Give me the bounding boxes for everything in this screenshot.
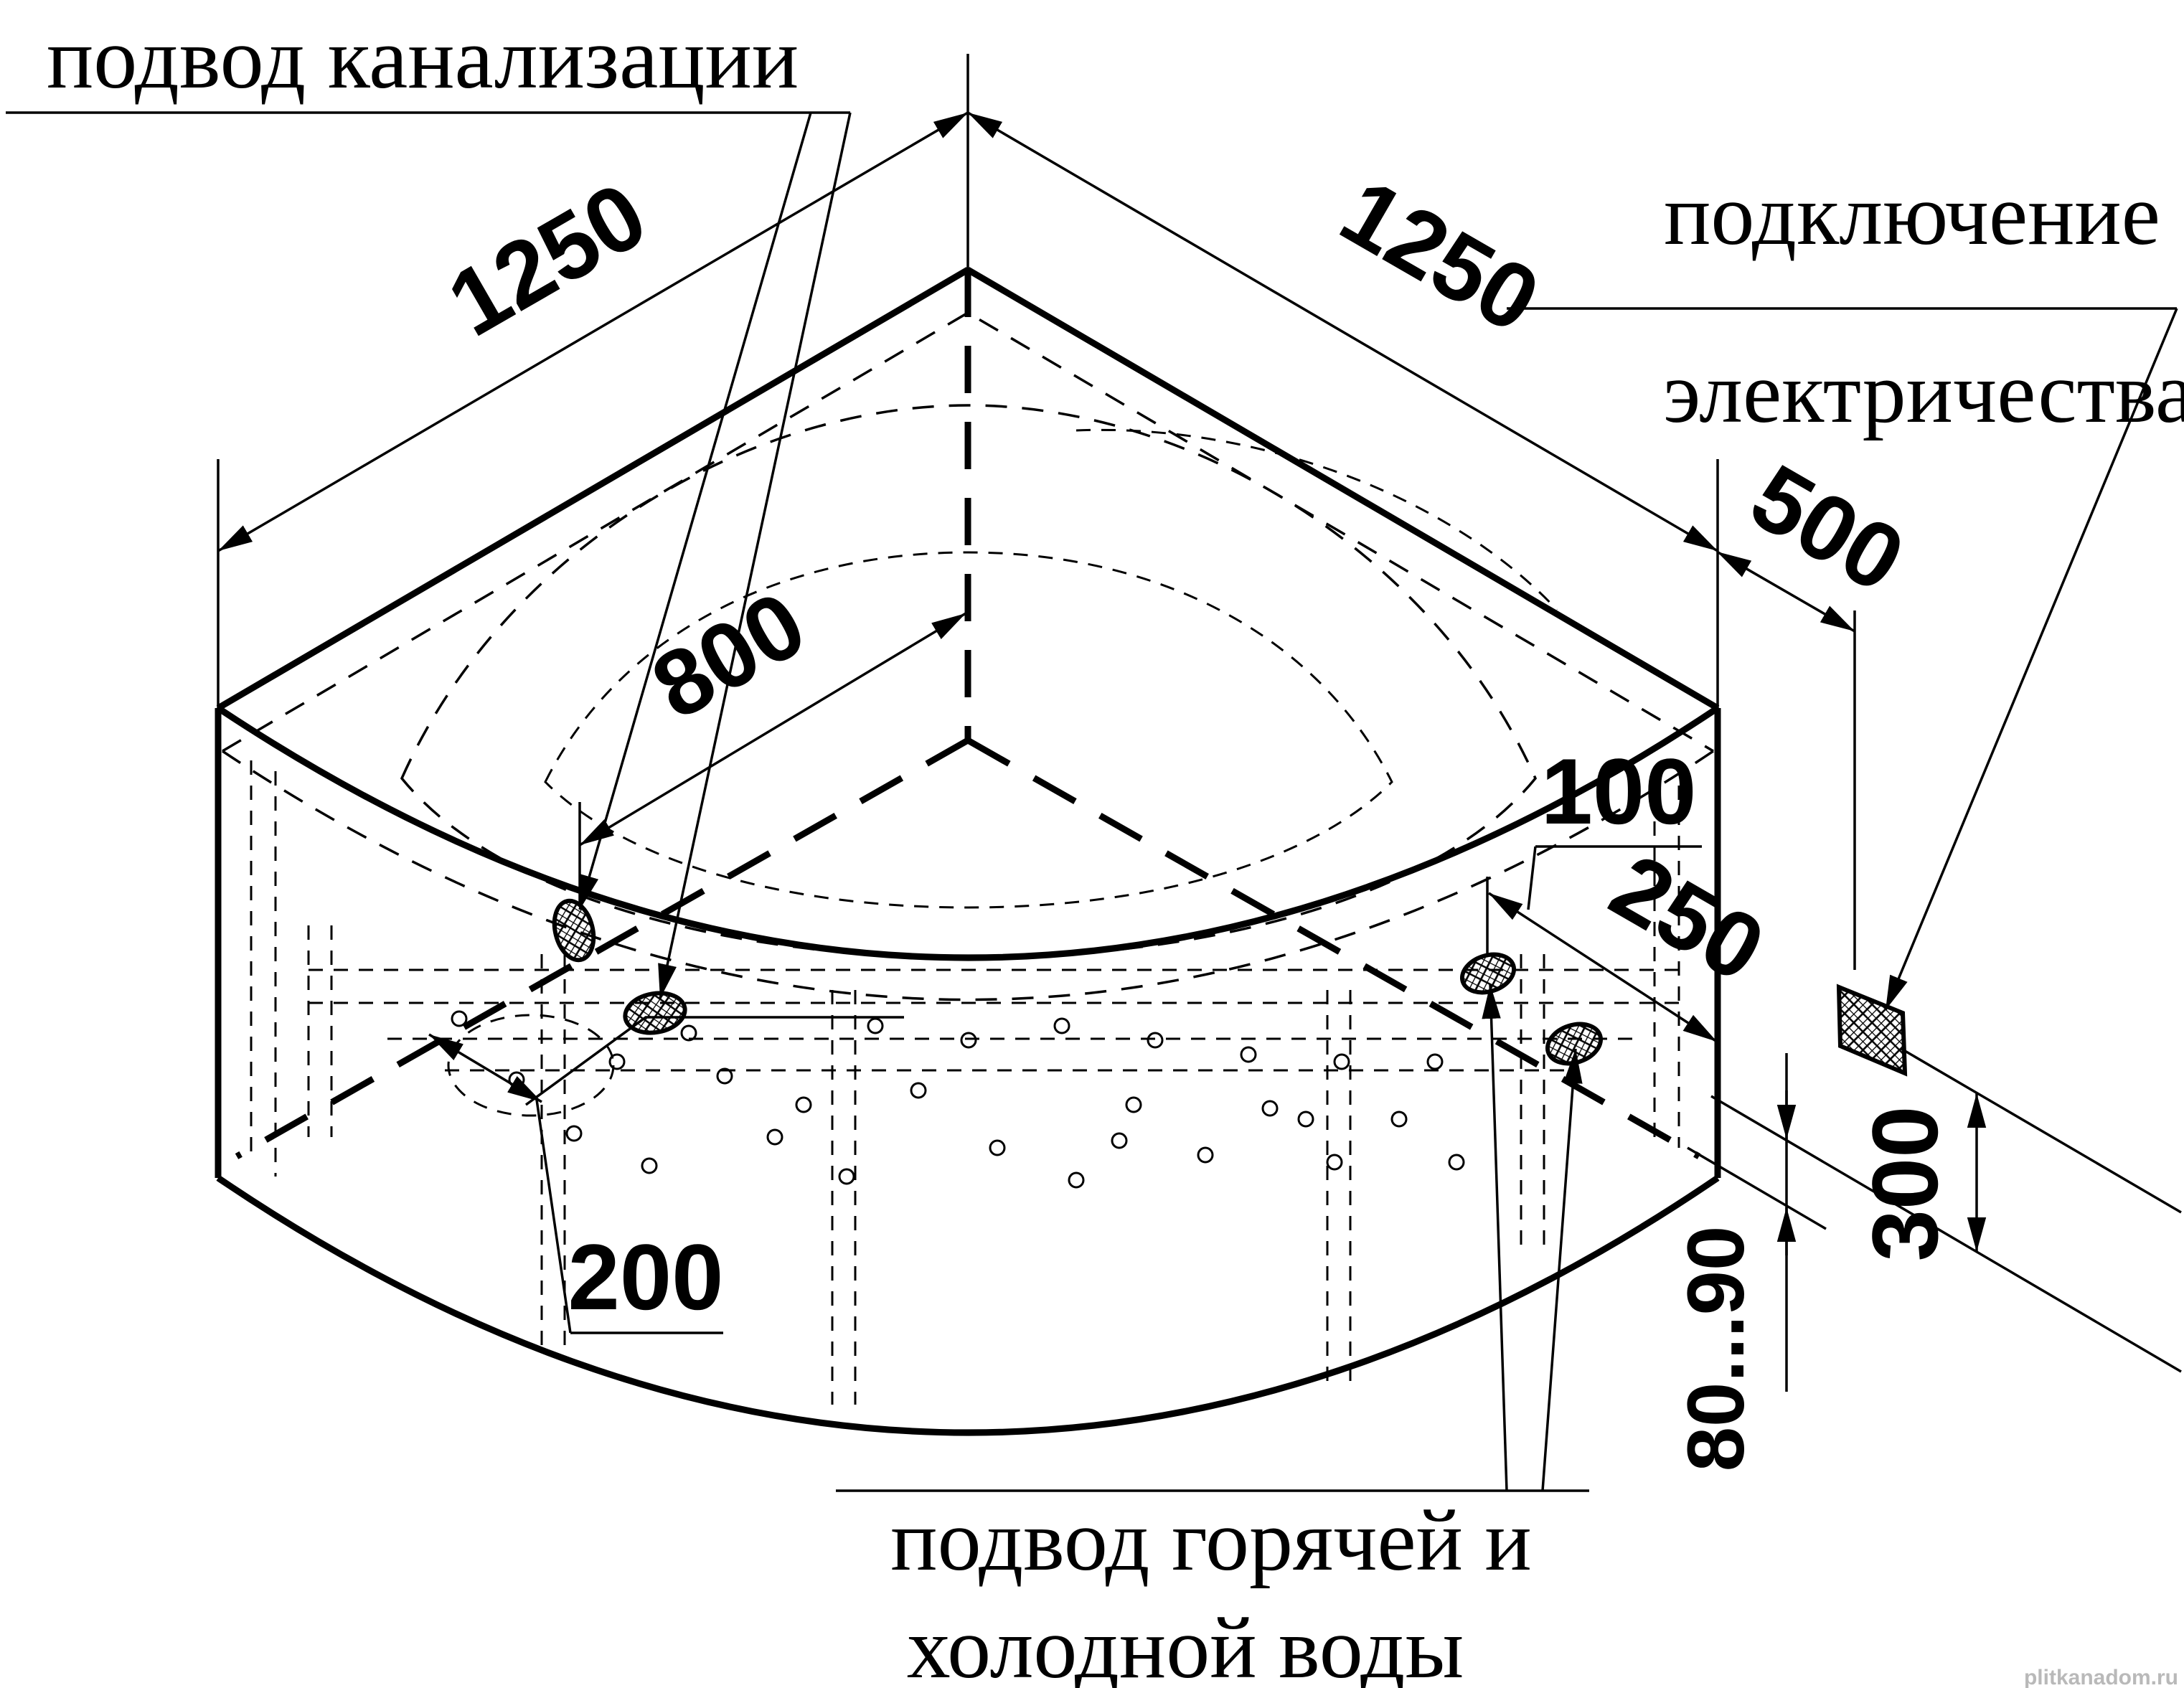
watermark: plitkanadom.ru bbox=[2024, 1666, 2178, 1688]
dim-line-200 bbox=[429, 1034, 542, 1102]
dim-label-1250-left: 1250 bbox=[431, 162, 663, 357]
leader-hot-water bbox=[1490, 984, 1507, 1491]
tub-outline bbox=[218, 270, 1718, 1433]
dim-label-500: 500 bbox=[1734, 444, 1921, 613]
dim-label-1250-right: 1250 bbox=[1324, 159, 1556, 353]
electric-label-line2: электричества bbox=[1663, 344, 2184, 441]
leader-sewage-2 bbox=[660, 113, 850, 999]
bathtub-installation-drawing: подвод канализации подключение электриче… bbox=[0, 0, 2184, 1688]
construction-lines bbox=[6, 54, 2181, 1491]
water-label-line1: подвод горячей и bbox=[890, 1492, 1531, 1589]
drawing-page: подвод канализации подключение электриче… bbox=[0, 0, 2184, 1688]
leg-5 bbox=[1521, 954, 1544, 1252]
tub-hidden-details bbox=[222, 313, 1713, 1405]
leg-3 bbox=[832, 990, 855, 1405]
callout-leaders bbox=[580, 113, 2177, 1491]
electric-label-line1: подключение bbox=[1664, 166, 2160, 263]
dim-label-250: 250 bbox=[1594, 834, 1781, 1002]
sewage-connection-point-2 bbox=[622, 989, 688, 1037]
dim-label-300: 300 bbox=[1853, 1106, 1957, 1262]
dim-label-200: 200 bbox=[568, 1225, 724, 1329]
ext-line-floor bbox=[1688, 1148, 1826, 1229]
rim-front-curve bbox=[218, 708, 1718, 958]
electric-connection-point bbox=[1839, 987, 1905, 1073]
seat-contour bbox=[1076, 430, 1557, 610]
floor-board-edge bbox=[526, 1017, 904, 1105]
dim-label-800: 800 bbox=[635, 571, 822, 740]
water-label-line2: холодной воды bbox=[907, 1600, 1464, 1688]
apron-bottom-curve bbox=[218, 1178, 1718, 1433]
dim-label-feet: 80...90 bbox=[1671, 1226, 1761, 1472]
floor-holes bbox=[452, 1012, 1464, 1187]
leg-1 bbox=[309, 925, 331, 1137]
leg-4 bbox=[1327, 990, 1350, 1385]
left-wall-inner-edges bbox=[251, 760, 276, 1177]
hot-water-connection-point bbox=[1457, 948, 1519, 999]
text-labels: подвод канализации подключение электриче… bbox=[47, 10, 2184, 1688]
sewage-connection-point-1 bbox=[549, 897, 600, 964]
sewage-label: подвод канализации bbox=[47, 10, 799, 107]
dim-label-100: 100 bbox=[1541, 739, 1697, 844]
hidden-bottom-edge-left bbox=[237, 740, 968, 1156]
